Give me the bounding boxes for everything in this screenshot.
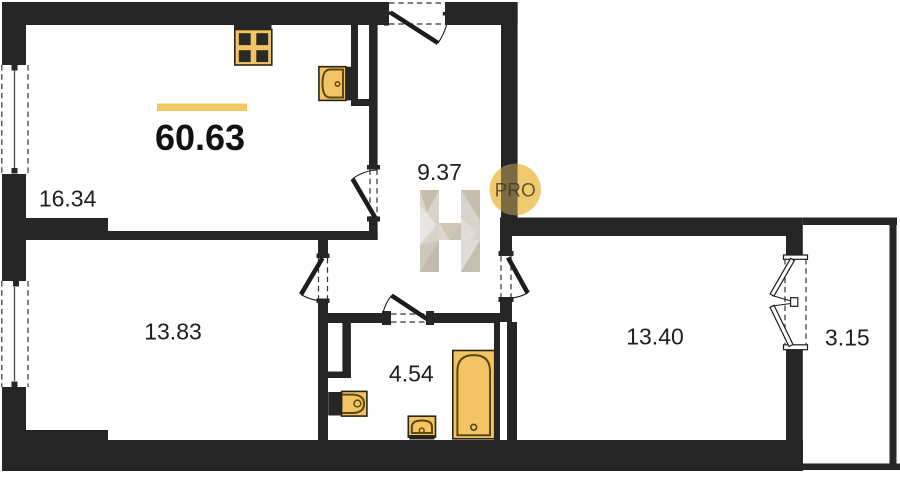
svg-text:9.37: 9.37 (417, 159, 462, 185)
svg-text:13.40: 13.40 (626, 324, 684, 350)
svg-text:13.83: 13.83 (144, 319, 202, 345)
svg-text:16.34: 16.34 (39, 186, 97, 212)
svg-text:3.15: 3.15 (825, 324, 870, 350)
svg-text:PRO: PRO (495, 181, 536, 202)
svg-text:4.54: 4.54 (389, 361, 434, 387)
svg-text:60.63: 60.63 (155, 117, 245, 158)
